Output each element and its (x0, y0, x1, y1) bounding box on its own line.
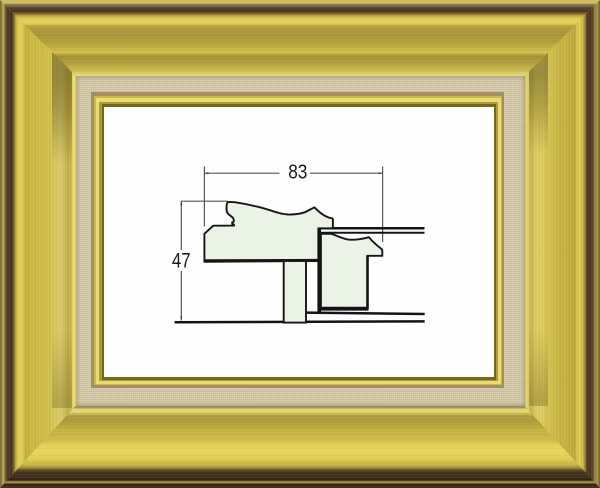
svg-text:83: 83 (288, 160, 307, 183)
svg-text:47: 47 (172, 249, 191, 274)
